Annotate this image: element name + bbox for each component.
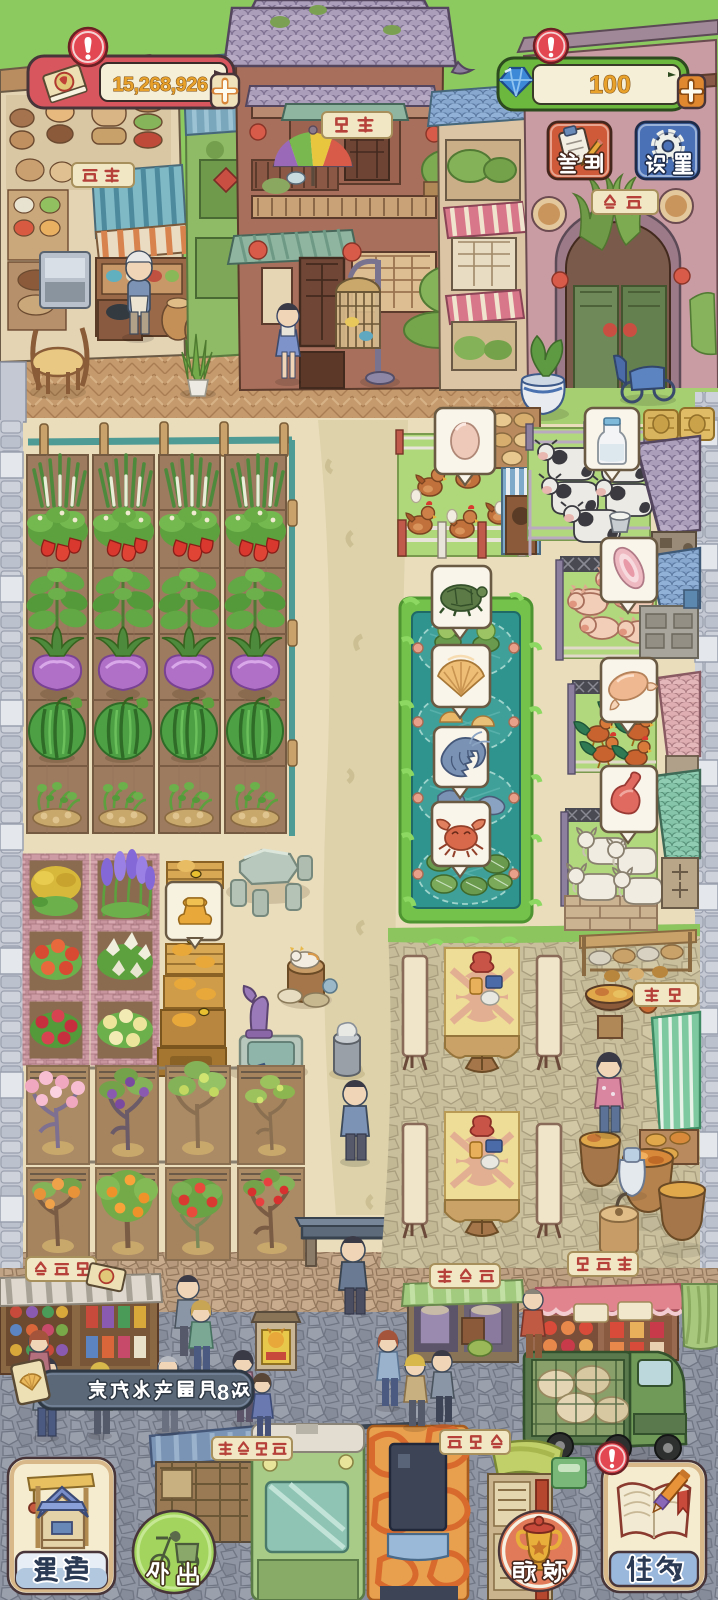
svg-text:8: 8 (217, 1380, 229, 1405)
svg-text:15,268,926: 15,268,926 (112, 74, 207, 96)
svg-text:100: 100 (589, 71, 631, 99)
